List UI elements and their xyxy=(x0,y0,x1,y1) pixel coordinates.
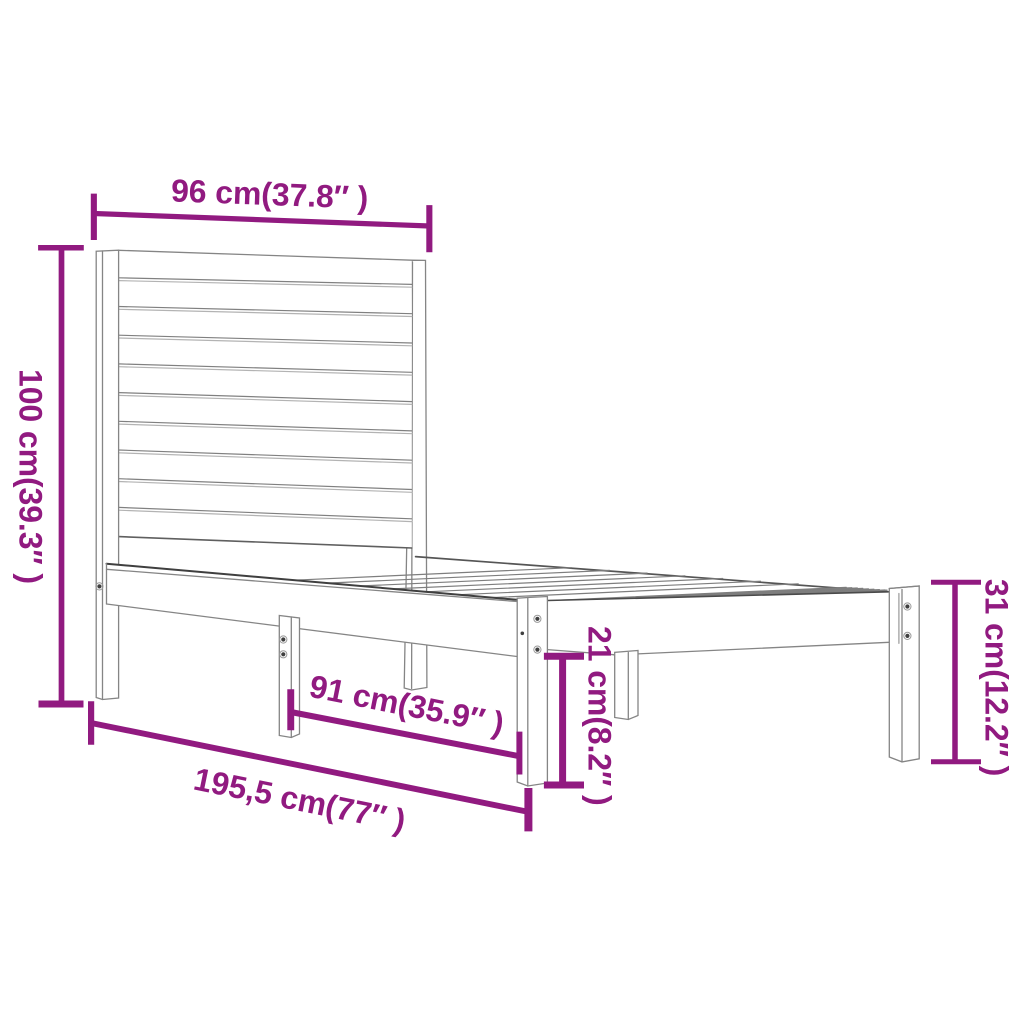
svg-text:100 cm(39.3″ ): 100 cm(39.3″ ) xyxy=(13,369,49,584)
svg-text:31 cm(12.2″ ): 31 cm(12.2″ ) xyxy=(979,579,1015,776)
svg-text:96 cm(37.8″ ): 96 cm(37.8″ ) xyxy=(170,172,368,215)
svg-text:21 cm(8.2″ ): 21 cm(8.2″ ) xyxy=(582,626,618,806)
